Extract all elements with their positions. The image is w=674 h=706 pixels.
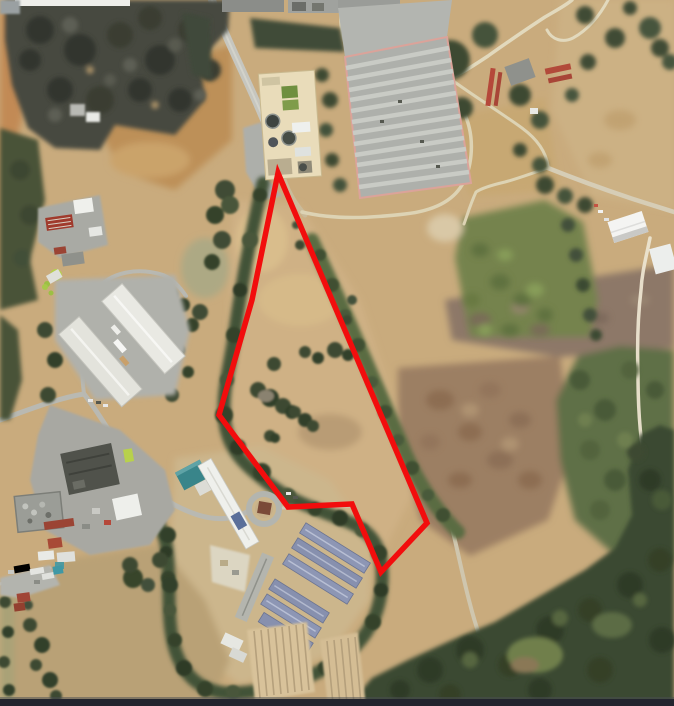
image-bottom-edge bbox=[0, 697, 674, 706]
wastewater-treatment-plant bbox=[258, 70, 321, 180]
aerial-map-image bbox=[0, 0, 674, 706]
crop-rows bbox=[247, 622, 366, 706]
